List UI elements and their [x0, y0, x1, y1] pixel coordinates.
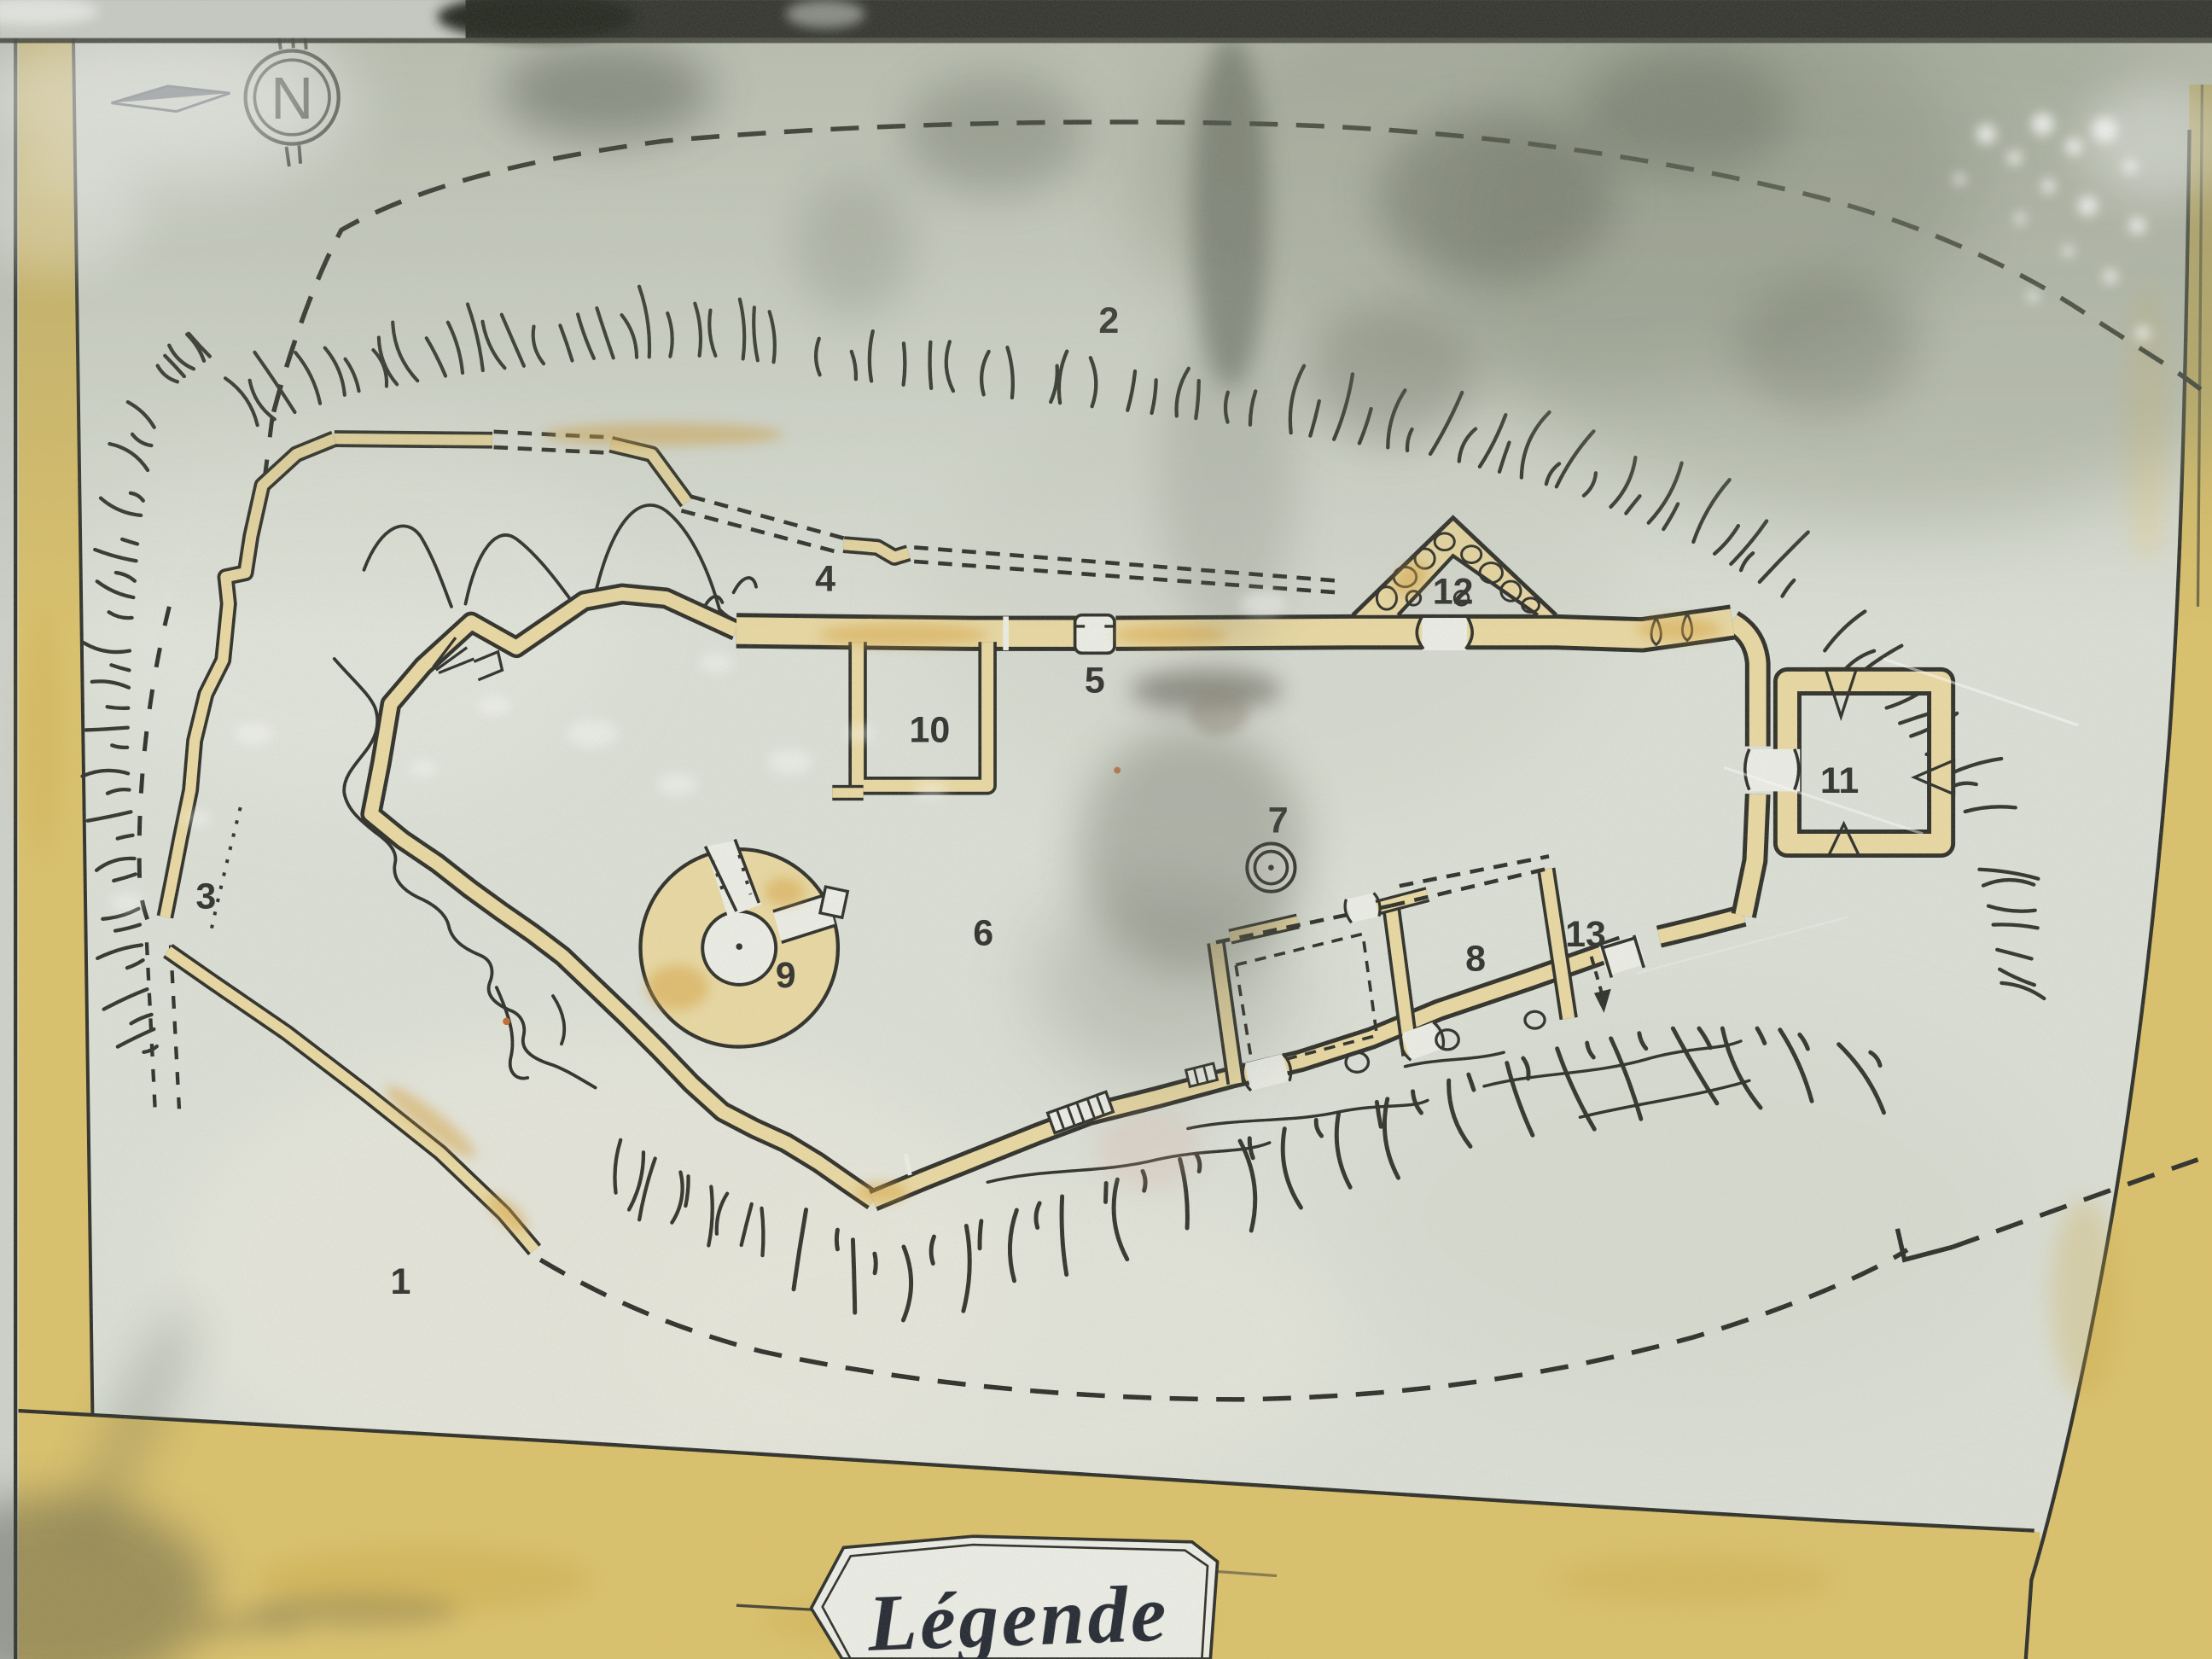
- site-plan: N 1 2 3 4 5 6 7 8 9 10 11 12 13 Légende: [0, 0, 2212, 1659]
- photo-of-castle-plan-panel: N 1 2 3 4 5 6 7 8 9 10 11 12 13 Légende: [0, 0, 2212, 1659]
- photo-grain: [0, 0, 2212, 1659]
